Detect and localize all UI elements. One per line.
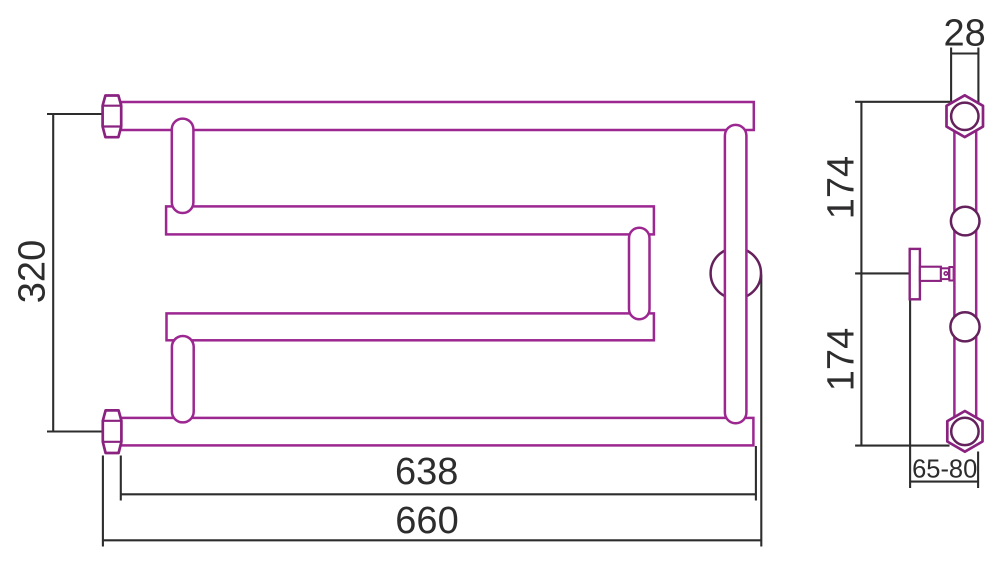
svg-text:65-80: 65-80 bbox=[912, 455, 977, 483]
svg-text:174: 174 bbox=[821, 156, 863, 219]
svg-text:638: 638 bbox=[395, 451, 458, 493]
svg-text:174: 174 bbox=[821, 328, 863, 391]
svg-text:28: 28 bbox=[944, 13, 986, 55]
svg-text:320: 320 bbox=[12, 240, 54, 303]
svg-text:660: 660 bbox=[395, 500, 458, 542]
